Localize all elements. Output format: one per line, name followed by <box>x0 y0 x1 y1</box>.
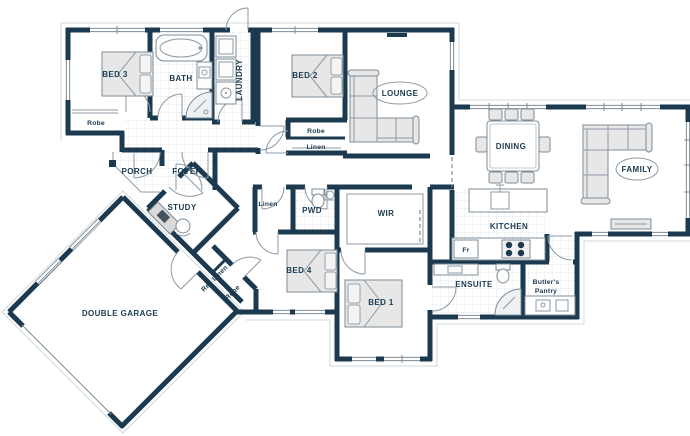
bath-label: BATH <box>169 74 192 83</box>
bed2-label: BED 2 <box>292 71 318 80</box>
floor-plan: BED 3 Robe BATH LAUNDRY BED 2 Robe Linen… <box>0 0 690 436</box>
study-label: STUDY <box>167 203 196 212</box>
bath-vanity <box>197 62 212 89</box>
dining-label: DINING <box>496 142 526 151</box>
bed4-label: BED 4 <box>286 266 312 275</box>
wir-label: WIR <box>378 209 395 218</box>
butlers-pantry-label-2: Pantry <box>535 288 557 295</box>
lounge-wall-unit <box>387 33 407 37</box>
robe-bed2-label: Robe <box>307 128 325 135</box>
butlers-pantry-label-1: Butler's <box>533 279 560 286</box>
ensuite-label: ENSUITE <box>455 280 493 289</box>
foyer-label: FOYER <box>172 167 202 176</box>
robe-bed3-label: Robe <box>87 120 105 127</box>
porch-label: PORCH <box>122 167 153 176</box>
kitchen-label: KITCHEN <box>490 222 528 231</box>
pantry-bench <box>525 296 575 315</box>
floor-plan-drawing: BED 3 Robe BATH LAUNDRY BED 2 Robe Linen… <box>0 0 690 436</box>
laundry-label: LAUNDRY <box>235 59 244 101</box>
pwd-label: PWD <box>302 206 322 215</box>
kitchen-island <box>469 185 547 212</box>
double-garage-label: DOUBLE GARAGE <box>82 309 159 318</box>
linen-bed2-label: Linen <box>306 144 325 151</box>
lounge-label: LOUNGE <box>382 89 419 98</box>
tv-cabinet <box>611 219 651 229</box>
bathtub <box>156 35 207 61</box>
garage-door <box>22 325 111 414</box>
laundry-appliances <box>216 36 236 104</box>
family-sofa <box>581 123 652 204</box>
linen-hall-label: Linen <box>258 201 277 208</box>
family-label: FAMILY <box>622 165 653 174</box>
fridge-label: Fr <box>462 247 469 254</box>
bed3-label: BED 3 <box>102 70 128 79</box>
bed1-label: BED 1 <box>368 298 394 307</box>
lounge-sofa <box>348 70 419 144</box>
